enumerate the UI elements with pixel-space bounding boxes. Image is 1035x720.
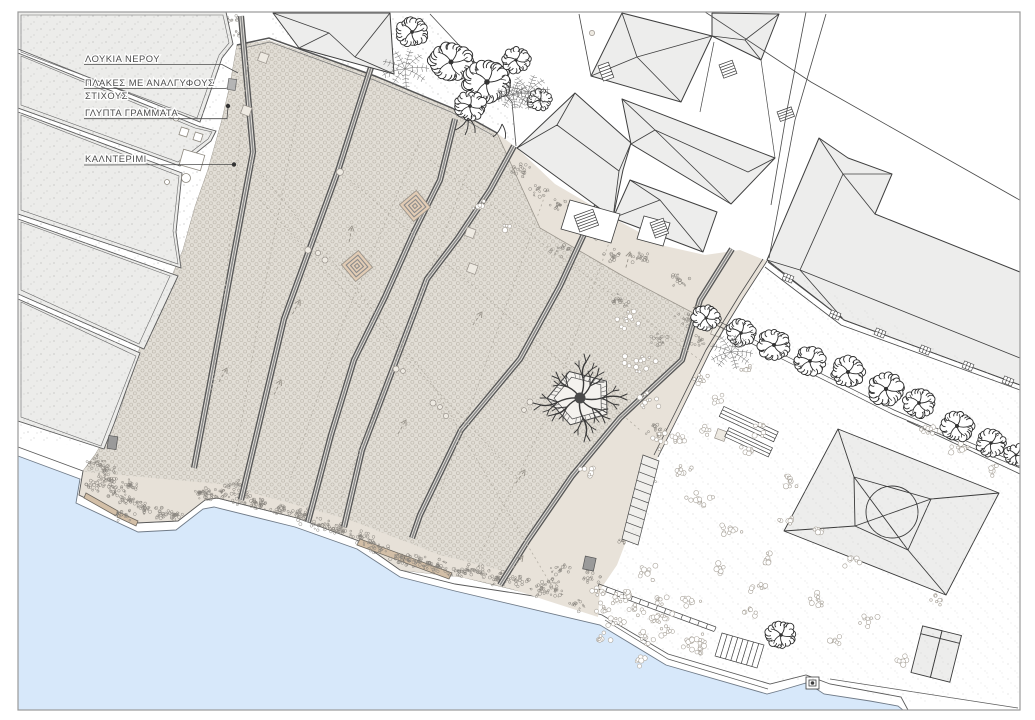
svg-text:ΠΛΑΚΕΣ ΜΕ ΑΝΑΛΓΥΦΟΥΣ: ΠΛΑΚΕΣ ΜΕ ΑΝΑΛΓΥΦΟΥΣ [85, 77, 214, 88]
svg-text:ΣΤΙΧΟΥΣ: ΣΤΙΧΟΥΣ [85, 90, 128, 101]
svg-text:ΛΟΥΚΙΑ ΝΕΡΟΥ: ΛΟΥΚΙΑ ΝΕΡΟΥ [85, 53, 160, 64]
svg-text:ΚΑΛΝΤΕΡΙΜΙ: ΚΑΛΝΤΕΡΙΜΙ [85, 153, 147, 164]
svg-text:ΓΛΥΠΤΑ ΓΡΑΜΜΑΤΑ: ΓΛΥΠΤΑ ΓΡΑΜΜΑΤΑ [85, 107, 178, 118]
